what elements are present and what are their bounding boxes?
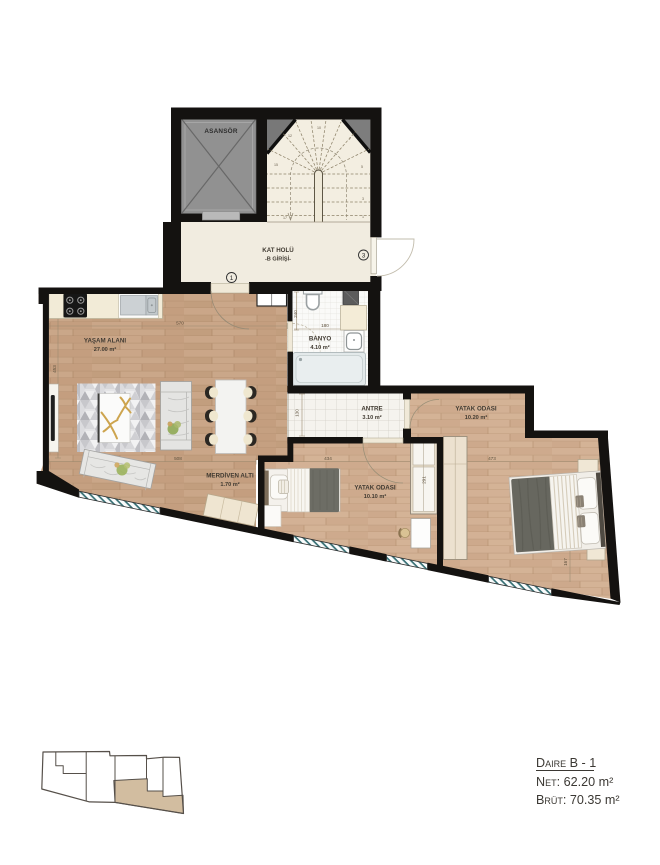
svg-text:17: 17 bbox=[283, 216, 287, 220]
svg-text:1: 1 bbox=[362, 215, 364, 219]
svg-text:10.20 m²: 10.20 m² bbox=[465, 414, 488, 421]
svg-text:3: 3 bbox=[362, 253, 366, 260]
svg-text:291: 291 bbox=[422, 476, 427, 484]
svg-text:570: 570 bbox=[176, 321, 184, 326]
svg-text:15: 15 bbox=[274, 163, 278, 167]
svg-text:KAT HOLÜ: KAT HOLÜ bbox=[262, 247, 294, 254]
svg-text:YATAK ODASI: YATAK ODASI bbox=[354, 485, 395, 492]
svg-text:130: 130 bbox=[295, 409, 300, 417]
svg-text:YAŞAM ALANI: YAŞAM ALANI bbox=[84, 338, 126, 345]
svg-text:1.70 m²: 1.70 m² bbox=[220, 481, 239, 488]
svg-text:3.10 m²: 3.10 m² bbox=[362, 414, 381, 421]
svg-text:10.10 m²: 10.10 m² bbox=[364, 493, 387, 500]
svg-text:-B GİRİŞİ-: -B GİRİŞİ- bbox=[265, 256, 291, 263]
svg-text:10: 10 bbox=[317, 126, 321, 130]
svg-text:3: 3 bbox=[362, 197, 364, 201]
svg-text:1: 1 bbox=[230, 275, 234, 282]
svg-text:BANYO: BANYO bbox=[309, 336, 332, 343]
svg-text:473: 473 bbox=[488, 456, 496, 461]
svg-text:27.00 m²: 27.00 m² bbox=[94, 346, 117, 353]
svg-text:167: 167 bbox=[563, 558, 568, 566]
svg-text:5: 5 bbox=[361, 165, 363, 169]
svg-text:453: 453 bbox=[52, 365, 57, 373]
svg-text:180: 180 bbox=[321, 323, 329, 328]
svg-text:YATAK ODASI: YATAK ODASI bbox=[455, 406, 496, 413]
svg-text:434: 434 bbox=[324, 456, 332, 461]
svg-text:7: 7 bbox=[349, 137, 351, 141]
svg-text:4.10 m²: 4.10 m² bbox=[310, 344, 329, 351]
svg-text:Net: 62.20 m²: Net: 62.20 m² bbox=[536, 775, 613, 789]
svg-text:ASANSÖR: ASANSÖR bbox=[204, 126, 238, 135]
svg-text:Daire B - 1: Daire B - 1 bbox=[536, 756, 596, 770]
svg-text:ANTRE: ANTRE bbox=[361, 406, 382, 413]
svg-text:Brüt: 70.35 m²: Brüt: 70.35 m² bbox=[536, 793, 620, 807]
svg-text:12: 12 bbox=[288, 134, 292, 138]
svg-text:MERDİVEN ALTI: MERDİVEN ALTI bbox=[206, 473, 254, 480]
svg-text:508: 508 bbox=[174, 456, 182, 461]
svg-text:240: 240 bbox=[293, 310, 298, 318]
